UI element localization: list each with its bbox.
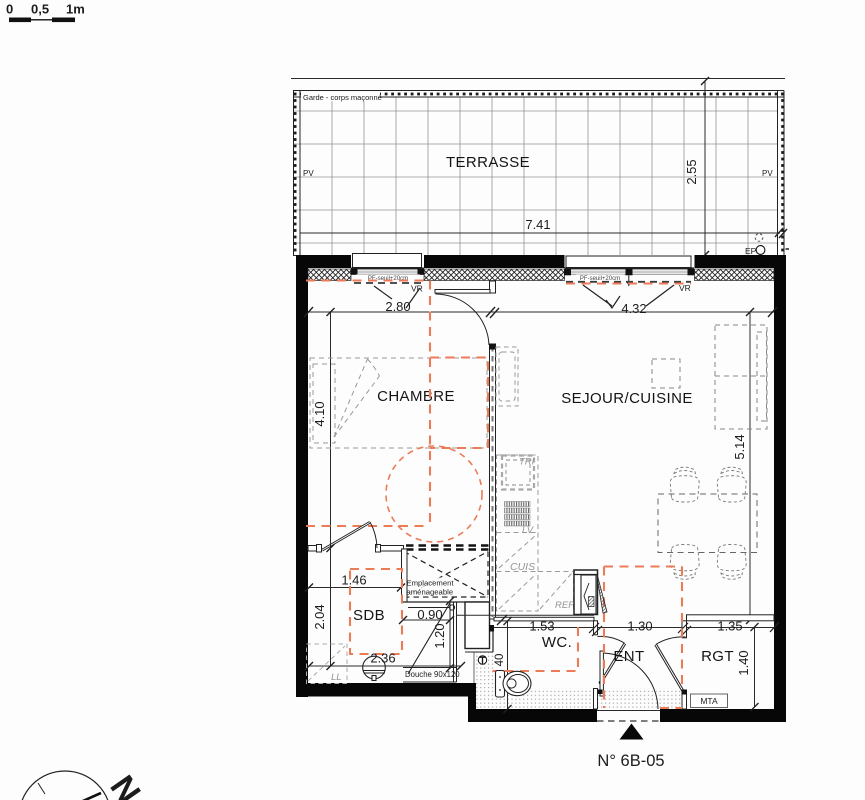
svg-text:Garde - corps maçonné: Garde - corps maçonné (303, 93, 382, 102)
svg-text:SEJOUR/CUISINE: SEJOUR/CUISINE (561, 390, 692, 407)
svg-text:ENT: ENT (613, 648, 644, 665)
svg-text:2.36: 2.36 (370, 651, 395, 666)
svg-text:WC.: WC. (542, 634, 572, 651)
svg-text:1.46: 1.46 (341, 573, 366, 588)
svg-text:40: 40 (494, 654, 506, 667)
svg-text:N° 6B-05: N° 6B-05 (597, 752, 664, 770)
svg-text:PV: PV (762, 169, 773, 178)
svg-text:LL: LL (331, 672, 342, 683)
svg-text:5.14: 5.14 (732, 434, 747, 459)
svg-text:0,5: 0,5 (31, 2, 49, 17)
svg-text:1.53: 1.53 (529, 619, 554, 634)
svg-text:Emplacement: Emplacement (407, 579, 455, 588)
svg-text:EP: EP (745, 246, 757, 256)
svg-text:RGT: RGT (701, 648, 734, 665)
svg-text:Douche 90x120: Douche 90x120 (405, 670, 460, 679)
svg-text:aménageable: aménageable (407, 588, 454, 597)
svg-text:SDB: SDB (353, 607, 385, 624)
svg-text:7.41: 7.41 (525, 217, 550, 232)
svg-text:0: 0 (6, 2, 13, 17)
svg-text:PV: PV (303, 169, 314, 178)
svg-text:1.30: 1.30 (627, 619, 652, 634)
svg-text:1m: 1m (66, 2, 85, 17)
svg-text:1.35: 1.35 (717, 619, 742, 634)
svg-text:TERRASSE: TERRASSE (446, 154, 530, 171)
svg-text:1.20: 1.20 (432, 623, 447, 648)
svg-text:4.32: 4.32 (621, 301, 646, 316)
svg-text:4.10: 4.10 (312, 401, 327, 426)
svg-text:2.55: 2.55 (684, 159, 699, 184)
svg-text:2.04: 2.04 (312, 604, 327, 629)
svg-text:CUIS: CUIS (510, 561, 535, 573)
svg-text:TRI: TRI (519, 457, 535, 468)
svg-text:MTA: MTA (700, 696, 718, 706)
svg-text:1.40: 1.40 (736, 650, 751, 675)
svg-text:REF: REF (555, 600, 575, 611)
svg-text:CHAMBRE: CHAMBRE (377, 388, 455, 405)
svg-text:0.90: 0.90 (417, 607, 442, 622)
svg-text:LV: LV (522, 525, 535, 536)
